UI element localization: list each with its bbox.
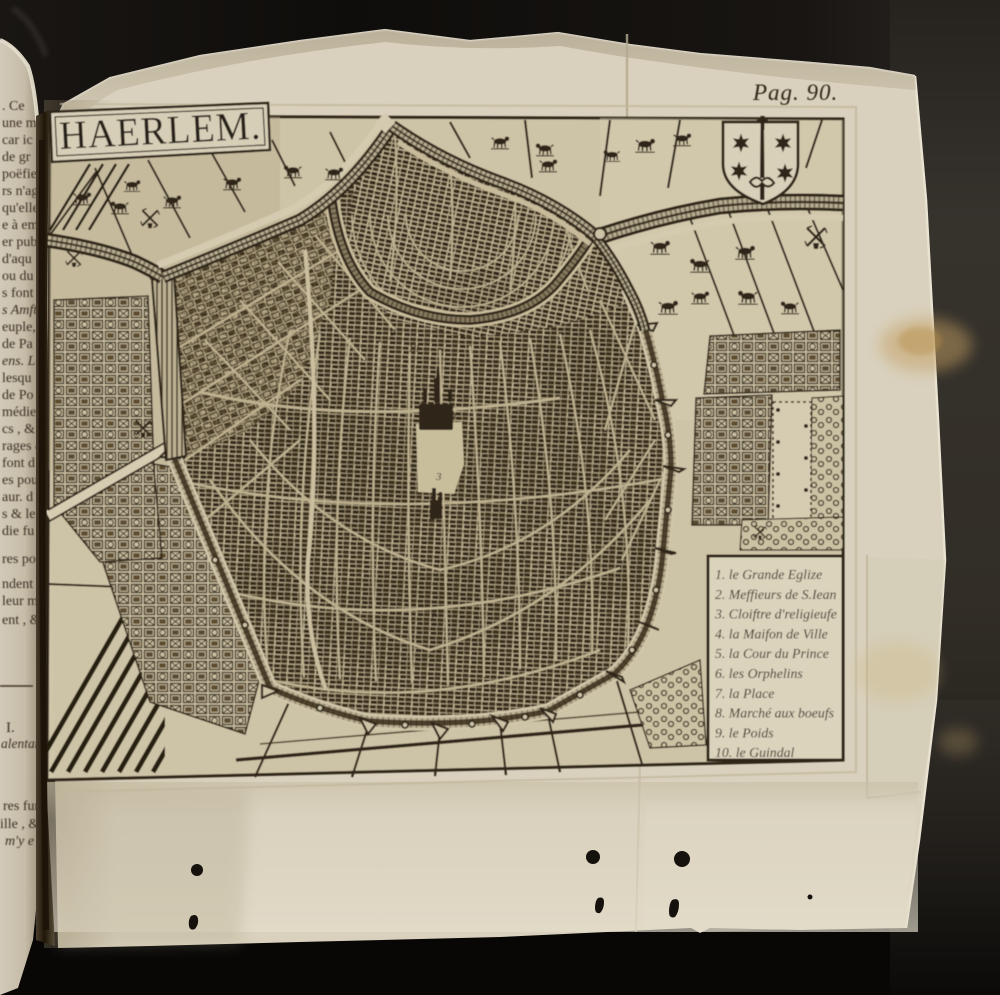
svg-text:ou du: ou du [2, 269, 34, 284]
svg-text:cs , &: cs , & [2, 422, 35, 437]
svg-text:font d: font d [2, 456, 35, 471]
svg-text:s font: s font [2, 286, 34, 301]
svg-text:de gr: de gr [2, 150, 31, 165]
svg-text:ent , &: ent , & [2, 613, 41, 628]
svg-text:poëfie.: poëfie. [2, 167, 40, 182]
svg-text:er pub: er pub [2, 235, 37, 250]
svg-text:aur. d: aur. d [2, 490, 33, 505]
svg-text:. Ce: . Ce [2, 99, 25, 114]
svg-text:rs n'ag: rs n'ag [2, 184, 38, 199]
svg-text:de Po: de Po [2, 388, 34, 403]
svg-text:lesqu: lesqu [2, 371, 32, 386]
svg-text:m'y e: m'y e [5, 834, 34, 849]
svg-text:euple,: euple, [2, 320, 36, 335]
svg-text:s Amft: s Amft [2, 303, 38, 318]
svg-text:qu'elle: qu'elle [2, 201, 39, 216]
svg-text:ille , &: ille , & [0, 817, 39, 832]
svg-text:de Pa: de Pa [2, 337, 34, 352]
svg-text:médie: médie [2, 405, 36, 420]
svg-text:car ic: car ic [2, 133, 33, 148]
svg-text:res fur: res fur [3, 799, 39, 814]
svg-text:es pou: es pou [2, 473, 38, 488]
svg-text:s & le: s & le [2, 507, 35, 522]
svg-text:d'aqu: d'aqu [2, 252, 32, 267]
svg-text:ens. L: ens. L [2, 354, 36, 369]
svg-text:die fu: die fu [2, 524, 34, 539]
svg-text:e à em: e à em [2, 218, 39, 233]
svg-text:leur m: leur m [2, 594, 38, 609]
svg-text:une m: une m [2, 116, 37, 131]
svg-text:I.: I. [6, 720, 15, 736]
